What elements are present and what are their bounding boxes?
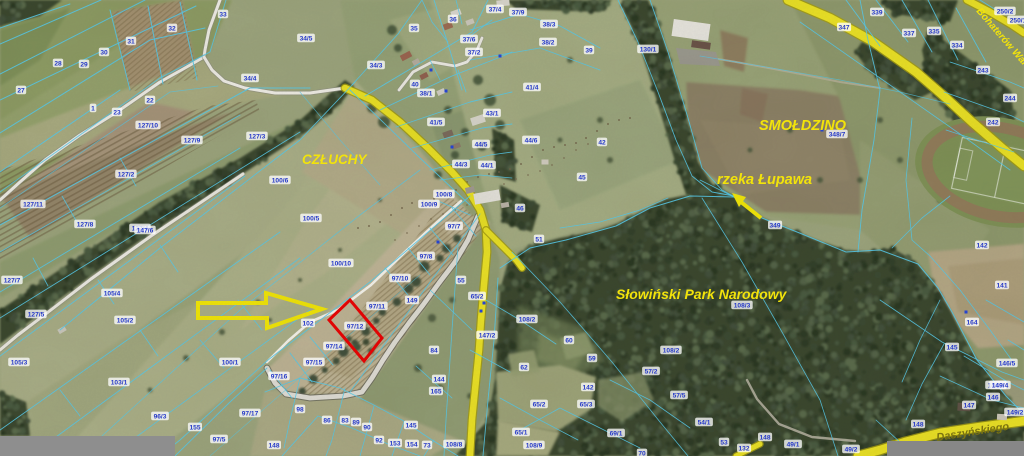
svg-text:rzeka Łupawa: rzeka Łupawa (717, 172, 812, 188)
svg-text:102: 102 (302, 320, 313, 327)
svg-text:100/8: 100/8 (436, 191, 453, 198)
svg-text:65/2: 65/2 (533, 401, 546, 408)
svg-text:43/1: 43/1 (486, 110, 499, 117)
svg-text:100/1: 100/1 (222, 359, 239, 366)
svg-text:96/3: 96/3 (154, 413, 167, 420)
svg-text:51: 51 (535, 236, 543, 243)
svg-text:347: 347 (838, 24, 849, 31)
svg-text:Słowiński Park Narodowy: Słowiński Park Narodowy (616, 286, 788, 302)
svg-text:165: 165 (430, 388, 441, 395)
svg-text:339: 339 (871, 9, 882, 16)
svg-text:242: 242 (987, 119, 998, 126)
svg-text:44/3: 44/3 (455, 161, 468, 168)
svg-text:250/2: 250/2 (997, 8, 1014, 15)
svg-text:337: 337 (903, 30, 914, 37)
svg-text:349: 349 (769, 222, 780, 229)
svg-text:92: 92 (375, 437, 383, 444)
svg-text:148: 148 (759, 434, 770, 441)
svg-text:142: 142 (582, 384, 593, 391)
svg-text:35: 35 (410, 25, 418, 32)
svg-text:38/3: 38/3 (543, 21, 556, 28)
svg-text:62: 62 (520, 364, 528, 371)
svg-text:149/2: 149/2 (1007, 409, 1024, 416)
svg-text:97/8: 97/8 (420, 253, 433, 260)
svg-text:100/9: 100/9 (421, 201, 438, 208)
svg-text:108/2: 108/2 (519, 316, 536, 323)
svg-text:148: 148 (912, 421, 923, 428)
svg-text:39: 39 (585, 47, 593, 54)
svg-text:108/3: 108/3 (734, 302, 751, 309)
svg-text:97/14: 97/14 (326, 343, 343, 350)
svg-text:CZŁUCHY: CZŁUCHY (302, 152, 368, 167)
svg-text:127/10: 127/10 (138, 122, 159, 129)
svg-text:153: 153 (389, 440, 400, 447)
svg-text:70: 70 (638, 450, 646, 456)
svg-text:86: 86 (323, 417, 331, 424)
svg-text:31: 31 (127, 38, 135, 45)
svg-text:34/4: 34/4 (244, 75, 257, 82)
svg-text:54/1: 54/1 (698, 419, 711, 426)
svg-text:243: 243 (977, 67, 988, 74)
svg-text:32: 32 (168, 25, 176, 32)
svg-text:164: 164 (966, 319, 977, 326)
svg-text:89: 89 (352, 419, 360, 426)
svg-text:40: 40 (411, 81, 419, 88)
svg-text:108/9: 108/9 (526, 442, 543, 449)
svg-text:149: 149 (406, 297, 417, 304)
svg-text:90: 90 (363, 424, 371, 431)
svg-text:49/2: 49/2 (845, 446, 858, 453)
svg-text:97/11: 97/11 (369, 303, 385, 310)
svg-text:100/5: 100/5 (303, 215, 320, 222)
svg-text:28: 28 (54, 60, 62, 67)
svg-text:154: 154 (406, 441, 417, 448)
svg-text:65/3: 65/3 (580, 401, 593, 408)
svg-text:130/1: 130/1 (640, 46, 657, 53)
svg-text:65/2: 65/2 (471, 293, 484, 300)
svg-text:146: 146 (987, 394, 998, 401)
svg-text:147: 147 (963, 402, 974, 409)
svg-text:23: 23 (113, 109, 121, 116)
svg-text:98: 98 (296, 406, 304, 413)
svg-text:97/12: 97/12 (347, 323, 364, 330)
svg-text:127/3: 127/3 (249, 133, 266, 140)
svg-text:37/9: 37/9 (512, 9, 525, 16)
svg-text:44/1: 44/1 (481, 162, 494, 169)
svg-text:97/16: 97/16 (271, 373, 288, 380)
svg-text:132: 132 (738, 445, 749, 452)
svg-text:60: 60 (565, 337, 573, 344)
svg-text:108/8: 108/8 (446, 441, 463, 448)
svg-text:127/11: 127/11 (23, 201, 43, 208)
svg-text:57/2: 57/2 (645, 368, 658, 375)
svg-text:145: 145 (405, 422, 416, 429)
svg-text:105/4: 105/4 (104, 290, 121, 297)
svg-text:105/3: 105/3 (11, 359, 28, 366)
svg-text:335: 335 (928, 28, 939, 35)
svg-text:97/5: 97/5 (213, 436, 226, 443)
svg-text:38/2: 38/2 (542, 39, 555, 46)
svg-text:29: 29 (80, 61, 88, 68)
svg-text:41/4: 41/4 (526, 84, 539, 91)
svg-text:141: 141 (996, 282, 1007, 289)
svg-text:57/5: 57/5 (673, 392, 686, 399)
svg-text:65/1: 65/1 (515, 429, 528, 436)
svg-text:34/5: 34/5 (300, 35, 313, 42)
svg-text:97/17: 97/17 (242, 410, 259, 417)
svg-text:55: 55 (457, 277, 465, 284)
svg-text:SMOŁDZINO: SMOŁDZINO (759, 118, 847, 134)
svg-text:53: 53 (720, 439, 728, 446)
svg-text:146/5: 146/5 (999, 360, 1016, 367)
svg-text:37/4: 37/4 (489, 6, 502, 13)
svg-text:100/6: 100/6 (272, 177, 289, 184)
svg-text:46: 46 (516, 205, 524, 212)
svg-text:41/5: 41/5 (430, 119, 443, 126)
svg-text:49/1: 49/1 (787, 441, 800, 448)
svg-text:22: 22 (146, 97, 154, 104)
svg-text:145: 145 (946, 344, 957, 351)
svg-text:30: 30 (100, 49, 108, 56)
svg-text:334: 334 (951, 42, 962, 49)
svg-text:97/7: 97/7 (448, 223, 461, 230)
svg-text:97/15: 97/15 (306, 359, 323, 366)
svg-text:42: 42 (598, 139, 606, 146)
svg-text:100/10: 100/10 (331, 260, 352, 267)
svg-text:155: 155 (189, 424, 200, 431)
svg-text:127/9: 127/9 (184, 137, 201, 144)
svg-text:73: 73 (423, 442, 431, 449)
svg-text:147/6: 147/6 (137, 227, 154, 234)
svg-text:142: 142 (976, 242, 987, 249)
svg-text:33: 33 (219, 11, 227, 18)
svg-text:37/2: 37/2 (468, 49, 481, 56)
svg-text:105/2: 105/2 (117, 317, 134, 324)
svg-text:83: 83 (341, 417, 349, 424)
svg-text:103/1: 103/1 (111, 379, 128, 386)
svg-text:149/4: 149/4 (992, 382, 1009, 389)
svg-text:37/6: 37/6 (463, 36, 476, 43)
svg-text:45: 45 (578, 174, 586, 181)
svg-text:144: 144 (433, 376, 444, 383)
svg-text:127/7: 127/7 (4, 277, 21, 284)
svg-text:84: 84 (430, 347, 438, 354)
svg-text:108/2: 108/2 (663, 347, 680, 354)
svg-text:27: 27 (17, 87, 25, 94)
svg-text:59: 59 (588, 355, 596, 362)
svg-text:250/1: 250/1 (1010, 17, 1024, 24)
svg-text:34/3: 34/3 (370, 62, 383, 69)
svg-text:244: 244 (1004, 95, 1015, 102)
svg-text:127/5: 127/5 (28, 311, 45, 318)
svg-text:127/2: 127/2 (118, 171, 135, 178)
svg-text:148: 148 (268, 442, 279, 449)
svg-text:44/5: 44/5 (475, 141, 488, 148)
svg-text:147/2: 147/2 (479, 332, 496, 339)
svg-text:127/8: 127/8 (77, 221, 94, 228)
svg-text:44/6: 44/6 (525, 137, 538, 144)
svg-text:1: 1 (91, 105, 95, 112)
svg-text:97/10: 97/10 (392, 275, 409, 282)
svg-text:36: 36 (449, 16, 457, 23)
svg-text:69/1: 69/1 (610, 430, 623, 437)
svg-text:38/1: 38/1 (420, 90, 433, 97)
